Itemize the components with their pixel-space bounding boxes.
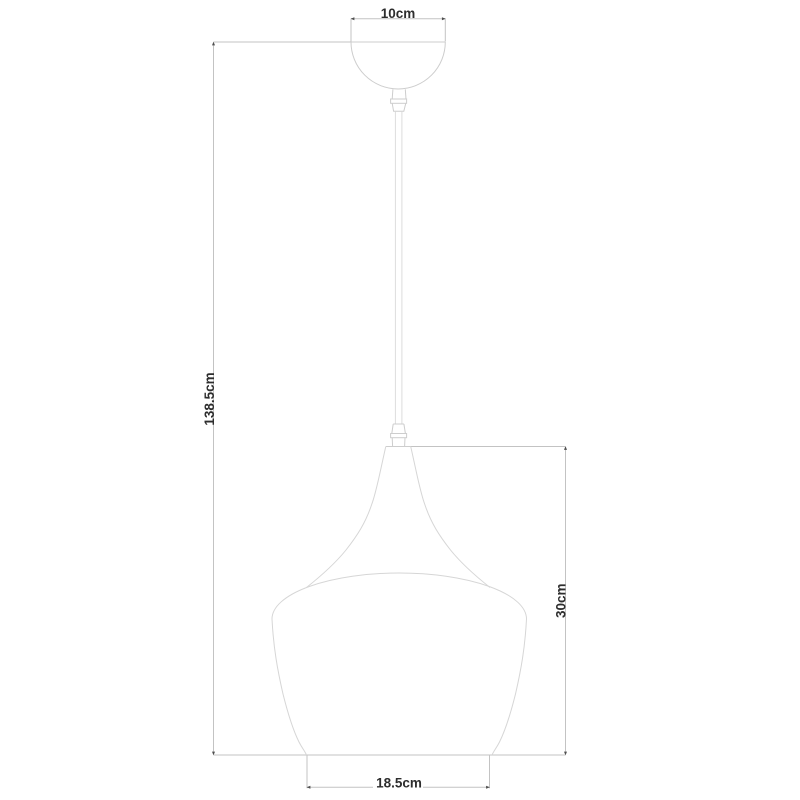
svg-text:18.5cm: 18.5cm: [376, 776, 422, 791]
svg-text:138.5cm: 138.5cm: [202, 372, 217, 425]
svg-text:10cm: 10cm: [381, 6, 416, 21]
svg-text:30cm: 30cm: [554, 583, 569, 618]
